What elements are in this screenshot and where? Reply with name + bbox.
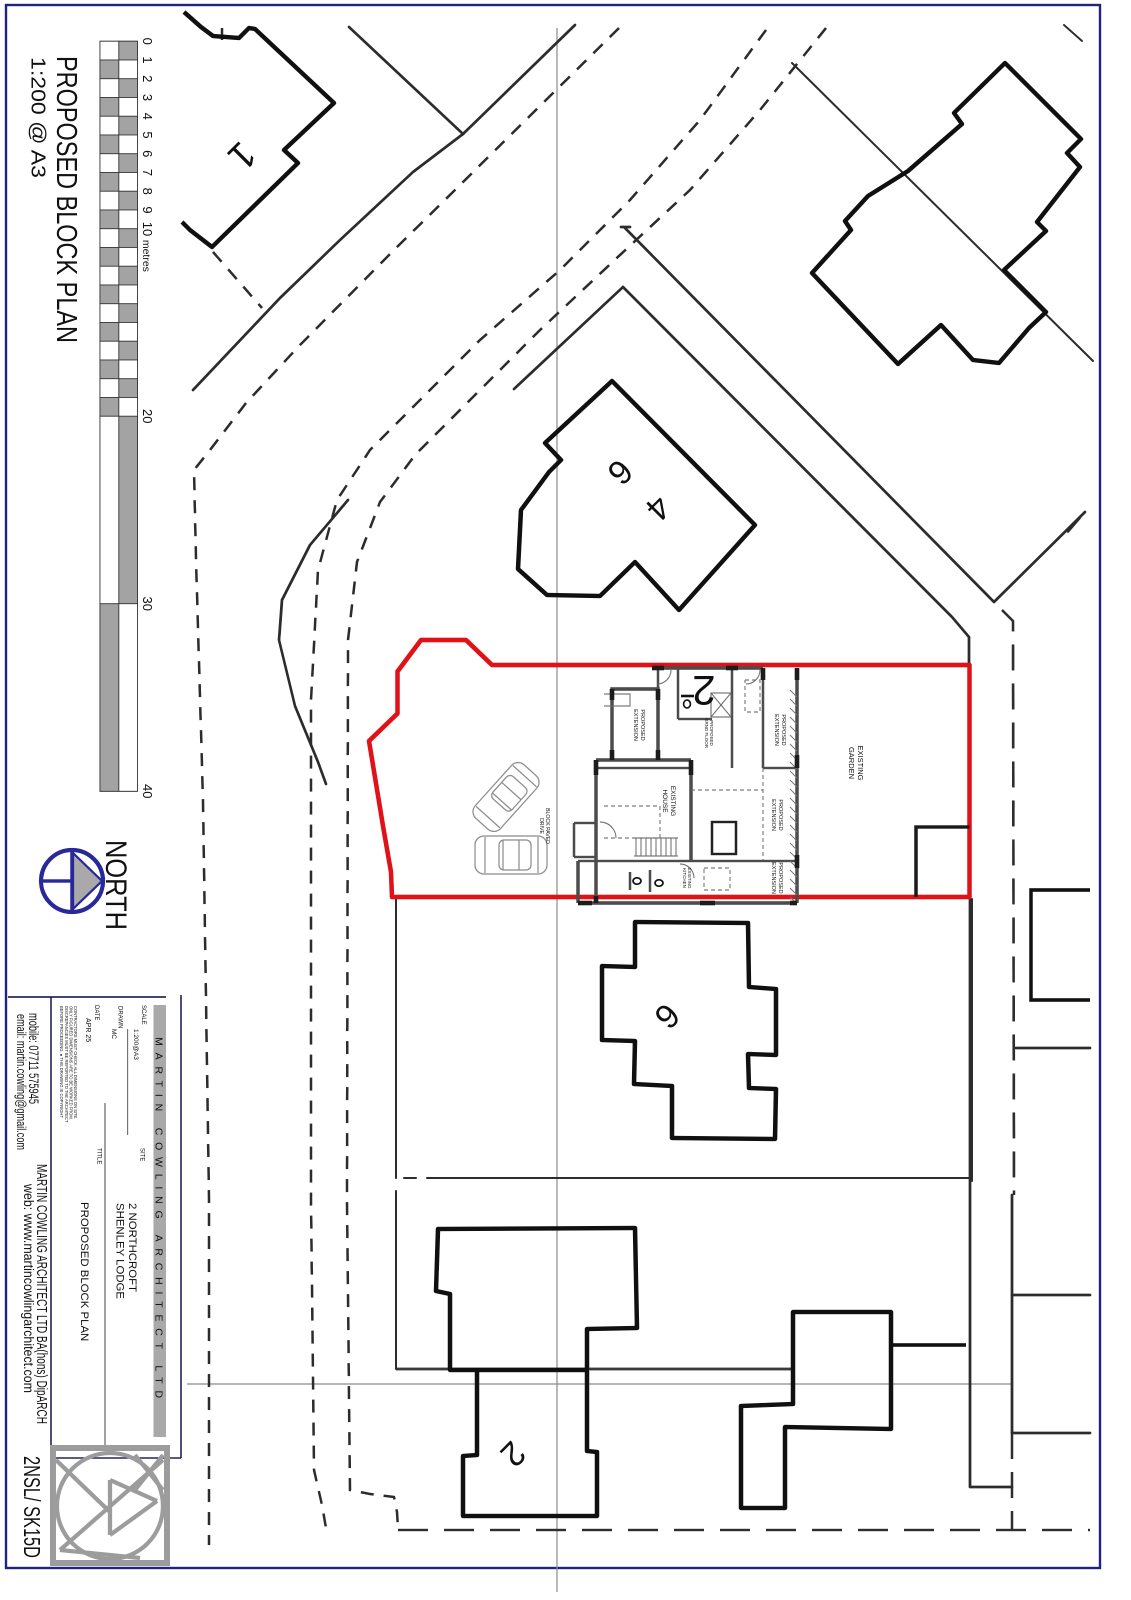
svg-text:2: 2 (692, 667, 715, 714)
svg-text:6: 6 (140, 150, 155, 157)
svg-text:PROPOSED BLOCK PLAN: PROPOSED BLOCK PLAN (78, 1202, 90, 1341)
svg-text:GRND FLOOR: GRND FLOOR (704, 718, 709, 749)
svg-text:HOUSE: HOUSE (661, 789, 668, 813)
svg-text:EXTENSION: EXTENSION (773, 714, 779, 746)
svg-text:DATE: DATE (93, 1005, 99, 1021)
svg-text:1: 1 (140, 56, 155, 63)
svg-text:20: 20 (140, 409, 155, 423)
svg-text:3: 3 (140, 94, 155, 101)
svg-text:30: 30 (140, 597, 155, 611)
svg-text:MARTIN COWLING ARCHITECT LTD: MARTIN COWLING ARCHITECT LTD (153, 1037, 165, 1405)
svg-text:PROPOSED: PROPOSED (777, 862, 783, 893)
svg-text:CONTRACTORS MUST CHECK ALL DIM: CONTRACTORS MUST CHECK ALL DIMENSIONS ON… (73, 1006, 78, 1119)
svg-text:BEFORE PROCEEDING. ● THIS DRAW: BEFORE PROCEEDING. ● THIS DRAWING IS COP… (59, 1006, 64, 1118)
svg-text:SCALE: SCALE (140, 1005, 146, 1025)
svg-text:8: 8 (140, 188, 155, 195)
svg-text:PROPOSED BLOCK PLAN: PROPOSED BLOCK PLAN (50, 56, 82, 343)
svg-text:40: 40 (140, 784, 155, 798)
svg-text:SHENLEY LODGE: SHENLEY LODGE (114, 1203, 126, 1299)
svg-text:NORTH: NORTH (99, 840, 132, 930)
svg-text:2: 2 (140, 75, 155, 82)
svg-text:SITE: SITE (139, 1148, 145, 1161)
svg-text:APR 25: APR 25 (84, 1018, 91, 1042)
svg-text:web: www.martincowlingarchitec: web: www.martincowlingarchitect.com (21, 1183, 36, 1393)
svg-text:email: martin.cowling@gmail.c: email: martin.cowling@gmail.com (14, 1014, 29, 1150)
svg-text:MC: MC (110, 1029, 117, 1039)
svg-text:PROPOSED: PROPOSED (709, 720, 714, 746)
svg-text:BLOCK PAVED: BLOCK PAVED (544, 808, 550, 844)
svg-text:6: 6 (647, 996, 687, 1036)
svg-text:DISCREPANCIES MUST BE REPORTED: DISCREPANCIES MUST BE REPORTED TO THE AR… (64, 1006, 69, 1123)
svg-text:2: 2 (493, 1434, 533, 1474)
svg-text:6: 6 (600, 452, 640, 492)
svg-text:2 NORTHCROFT: 2 NORTHCROFT (126, 1203, 138, 1292)
svg-text:EXISTING: EXISTING (687, 867, 692, 889)
svg-text:DRAWN: DRAWN (117, 1006, 123, 1028)
svg-text:PROPOSED: PROPOSED (777, 799, 783, 830)
svg-text:EXTENSION: EXTENSION (770, 799, 776, 831)
svg-text:7: 7 (140, 169, 155, 176)
svg-text:EXISTING: EXISTING (669, 786, 676, 816)
svg-text:KITCHEN: KITCHEN (682, 868, 687, 888)
svg-text:PROPOSED: PROPOSED (780, 714, 786, 745)
svg-text:9: 9 (140, 206, 155, 213)
svg-text:EXTENSION: EXTENSION (632, 709, 638, 741)
svg-text:PROPOSED: PROPOSED (639, 709, 645, 740)
svg-text:1:200 @ A3: 1:200 @ A3 (27, 57, 49, 178)
svg-text:1: 1 (219, 133, 264, 178)
svg-text:10 metres: 10 metres (140, 222, 155, 272)
svg-text:TITLE: TITLE (96, 1148, 102, 1164)
svg-text:5: 5 (140, 131, 155, 138)
svg-text:EXTENSION: EXTENSION (770, 862, 776, 894)
svg-text:EXISTING: EXISTING (856, 745, 865, 780)
svg-text:2NSL/ SK15D: 2NSL/ SK15D (19, 1456, 45, 1558)
svg-text:DRIVE: DRIVE (538, 818, 544, 834)
svg-text:0: 0 (140, 38, 155, 45)
svg-text:ONLY FIGURED DIMENSIONS ARE TO: ONLY FIGURED DIMENSIONS ARE TO BE WORKED… (68, 1006, 73, 1120)
svg-text:4: 4 (638, 488, 678, 528)
svg-text:4: 4 (140, 113, 155, 120)
svg-text:GARDEN: GARDEN (847, 747, 856, 779)
svg-text:1:200@A3: 1:200@A3 (132, 1029, 139, 1060)
